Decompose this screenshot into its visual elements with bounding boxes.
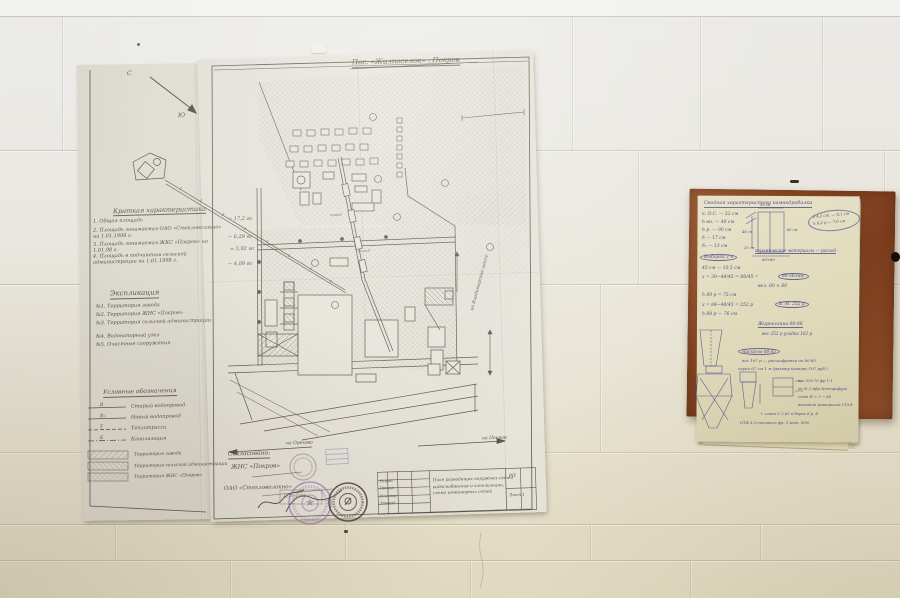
legend-label: Теплотрасса (131, 425, 166, 432)
approval-date: 12.05.1998 (283, 493, 306, 499)
notebook-note-line: Жирноглина 80-88 (758, 322, 803, 328)
sketch-dim-label: 85 см (787, 228, 797, 232)
wall-mortar-line (690, 560, 691, 598)
legend-key: В₁ (100, 414, 105, 420)
wall-top-ledge (0, 0, 900, 17)
wall-scuff-mark (790, 180, 799, 183)
title-block-sheet: Лист 1 (509, 492, 525, 497)
notebook-calc-line: δ — 17 см (702, 236, 725, 241)
wall-mortar-line (590, 524, 591, 560)
wall-mortar-line (638, 150, 639, 284)
photo-scene: Пос. «Жилпоселок» : Покров С Ю Краткая х… (0, 0, 900, 598)
notebook-calc-line: к. О.С. — 52 см (702, 212, 738, 217)
notebook-calc-line: h р. — 90 см (702, 228, 731, 233)
notebook-note-line: счёт Ф = 2 − 80 (798, 395, 831, 400)
wall-mortar-line (115, 524, 116, 560)
notebook-calc-line: x = 84−48/45 = 252 р (702, 303, 753, 308)
notebook-note-line: через 67 см 1 м (размер камеры 107 руб.) (738, 367, 828, 372)
notebook-calc-line: x = 30−48/45 = 88/45 = (702, 275, 758, 280)
notebook-note-line: вес 252 р усадка 162 р (762, 331, 812, 336)
sketch-dim-label: 50 см (760, 203, 770, 207)
notebook-calc-line: h вн. — 48 см (702, 220, 734, 225)
brief-item-value: − 4,09 га (228, 261, 252, 268)
notebook-note-line: ОТФ 3,3 типового фр. 5 мат. 30% (740, 421, 809, 426)
notebook-note-line: h 8,2 р — 7,6 см (813, 219, 845, 226)
wall-mortar-line (822, 17, 823, 150)
notebook-note-line: вес 50×70 фр 1:1 (798, 379, 833, 384)
area-label: склад (358, 248, 370, 253)
wall-mortar-line (0, 524, 900, 525)
notebook-note-line: выходит материала 119,8 (798, 403, 853, 408)
legend-label: Новый водопровод (131, 413, 181, 421)
brief-item-label: 1. Общая площадь (93, 217, 143, 225)
title-block-roles: Разраб. Провер. Н.контр. Утверд. (380, 478, 398, 508)
notebook-center-note: керамические материалы — расход (755, 248, 836, 254)
legend-key: В (100, 403, 103, 409)
legend-key: К (100, 436, 104, 442)
board-hole (891, 252, 900, 262)
notebook-circled-value: Насыпью 80-85 (738, 348, 780, 355)
notebook-calc-line: h 80 р = 75 см (702, 293, 736, 298)
notebook-note-line: до № 2 вфр Центрифуга (798, 387, 847, 392)
sketch-dim-label: 20 см (744, 246, 754, 250)
wall-speck (137, 43, 140, 46)
notebook-calc-line: 45 см — 10,5 см (702, 266, 740, 271)
wall-mortar-line (700, 17, 701, 150)
legend-key: Т (100, 425, 103, 431)
wall-speck (344, 530, 348, 533)
title-block-role: Провер. (380, 485, 398, 493)
title-block-role: Утверд. (380, 500, 398, 508)
notebook-calc-line: вел. 60 × 60 (758, 284, 787, 289)
title-block-stage: РП (509, 474, 516, 480)
brief-item-value: = 5,92 га (230, 246, 254, 253)
wall-mortar-line (760, 524, 761, 560)
notebook-calc-line: δ₁ — 13 см (702, 244, 727, 249)
wall-mortar-line (470, 560, 471, 598)
brief-item-value: − 17,2 га (228, 216, 252, 223)
approvals-heading: Согласовано: (228, 449, 270, 459)
road-label-left: на Орехово (286, 441, 313, 447)
brief-item-value: − 6,29 га (228, 234, 252, 241)
wall-mortar-line (62, 17, 63, 150)
notebook-note-line: вес 107 р — расшифровка до 80-85 (742, 359, 816, 364)
wall-mortar-line (0, 560, 900, 561)
paper-tab (312, 44, 326, 53)
notebook-heading: Сводная характеристика камнедробилки (704, 201, 812, 208)
wall-mortar-line (572, 17, 573, 150)
road-label-right: на Покров (482, 436, 507, 442)
compass-north-label: С (127, 70, 132, 78)
sketch-dim-label: 48 см (742, 230, 752, 234)
wall-mortar-line (230, 560, 231, 598)
area-label: завод (330, 212, 342, 217)
notebook-calc-line: h 88 р — 76 см (702, 312, 737, 317)
legend-label: Канализация (131, 436, 166, 443)
wall-mortar-line (600, 284, 601, 452)
sketch-dim-label: 60×60 (762, 258, 775, 263)
explication-heading: Экспликация (110, 288, 160, 299)
compass-south-label: Ю (178, 112, 185, 120)
notebook-note-line: + глина С 2,82 в барке 6 р. 8 (760, 412, 818, 417)
title-block-description: План разводящих наружных сетей водоснабж… (433, 475, 514, 498)
approval-party: ЖНС «Покров» (231, 462, 280, 471)
